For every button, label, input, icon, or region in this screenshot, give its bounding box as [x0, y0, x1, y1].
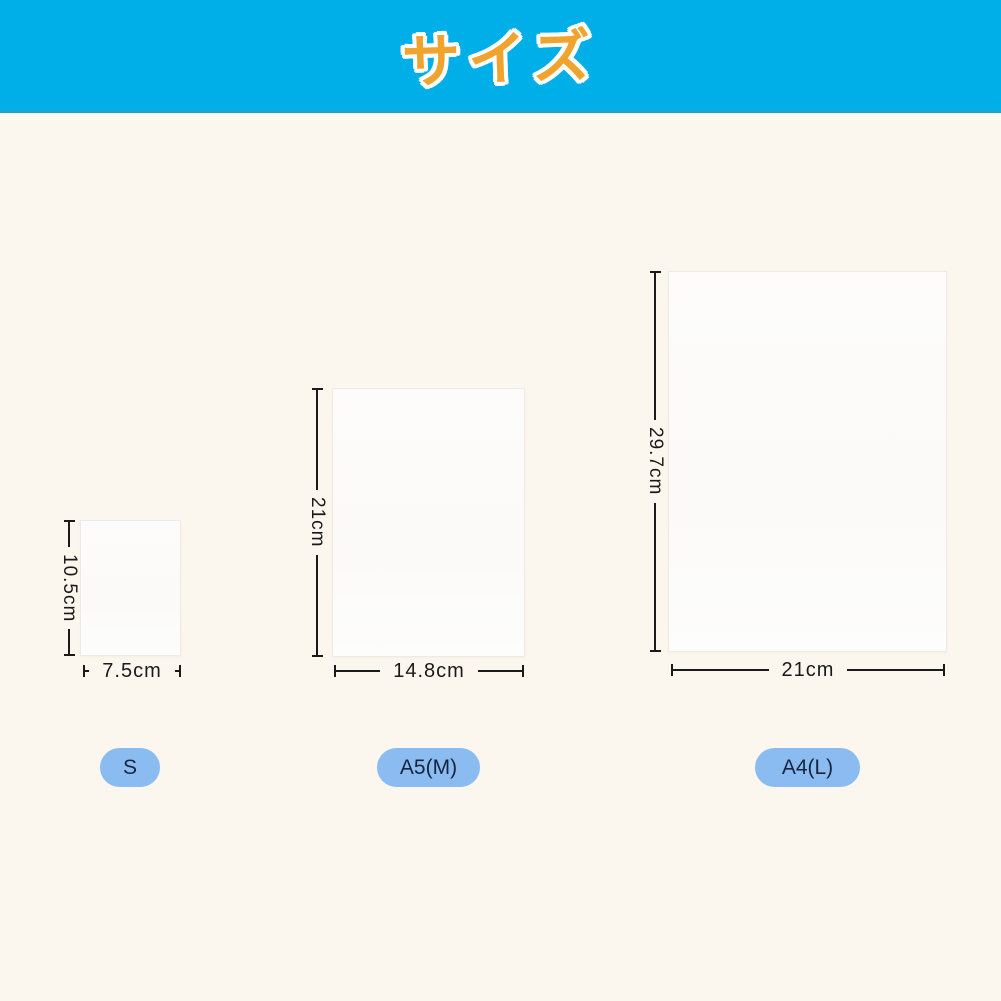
dimension-cap — [522, 665, 524, 677]
width-dimension-a4: 21cm — [671, 659, 945, 681]
height-dimension-a5: 21cm — [306, 388, 328, 657]
dimension-line — [316, 555, 318, 655]
dimension-cap — [943, 664, 945, 676]
height-label-s: 10.5cm — [58, 547, 80, 629]
dimension-line — [336, 670, 380, 672]
dimension-line — [68, 522, 70, 547]
page-title: サイズ — [401, 8, 600, 99]
dimension-line — [654, 273, 656, 420]
width-label-s: 7.5cm — [89, 660, 174, 683]
dimension-line — [316, 390, 318, 490]
width-label-a4: 21cm — [769, 659, 848, 682]
canvas-sheet-a4 — [668, 271, 947, 652]
dimension-line — [847, 669, 943, 671]
height-label-a5: 21cm — [306, 490, 328, 554]
width-dimension-a5: 14.8cm — [334, 660, 524, 682]
dimension-line — [68, 629, 70, 654]
canvas-sheet-s — [80, 520, 181, 656]
dimension-line — [673, 669, 769, 671]
dimension-cap — [650, 650, 661, 652]
size-badge-a5: A5(M) — [377, 748, 480, 787]
size-badge-a4: A4(L) — [755, 748, 860, 787]
height-dimension-a4: 29.7cm — [644, 271, 666, 652]
height-dimension-s: 10.5cm — [58, 520, 80, 656]
canvas-sheet-a5 — [332, 388, 525, 657]
dimension-cap — [179, 665, 181, 677]
dimension-cap — [64, 654, 75, 656]
dimension-cap — [312, 655, 323, 657]
header-underline — [0, 115, 1001, 120]
width-dimension-s: 7.5cm — [83, 660, 181, 682]
width-label-a5: 14.8cm — [380, 660, 478, 683]
header-band: サイズ — [0, 0, 1001, 113]
size-badge-s: S — [100, 748, 160, 787]
height-label-a4: 29.7cm — [644, 420, 666, 502]
dimension-line — [654, 503, 656, 650]
dimension-line — [478, 670, 522, 672]
